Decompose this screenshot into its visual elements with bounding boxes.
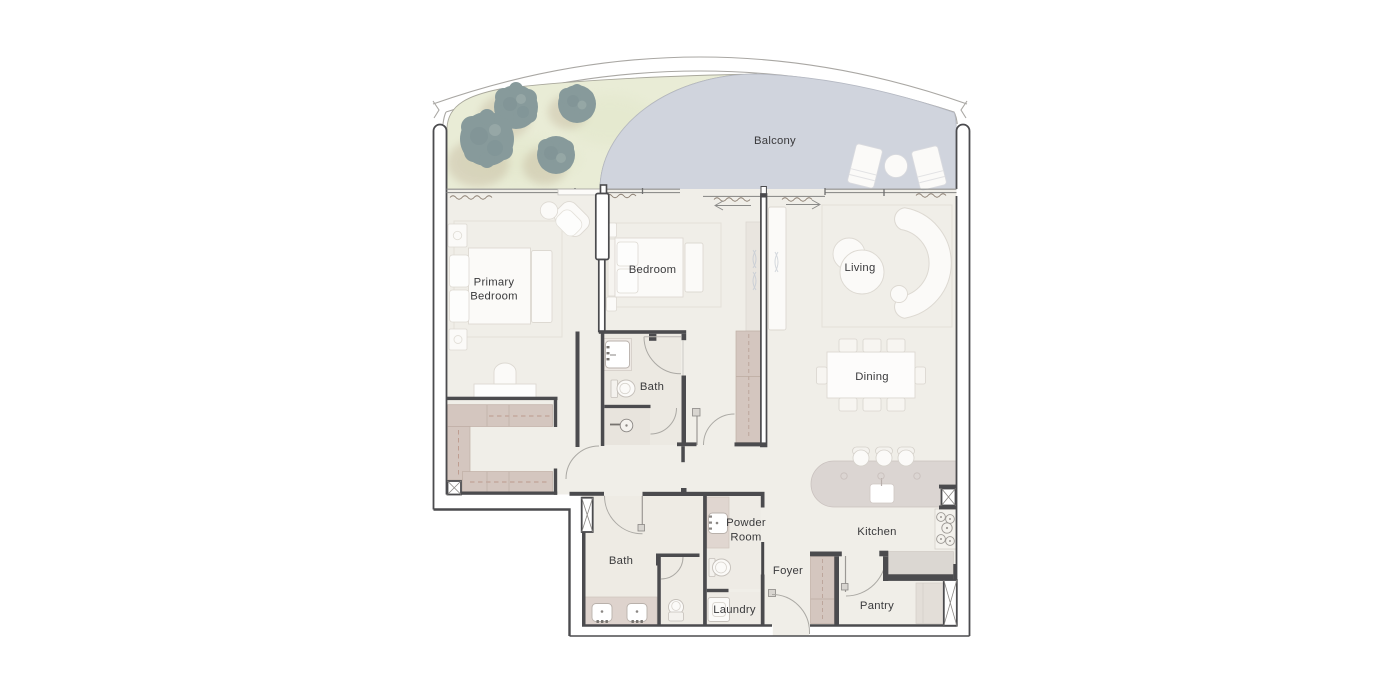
svg-text:Bedroom: Bedroom bbox=[629, 264, 677, 276]
svg-text:Laundry: Laundry bbox=[713, 604, 756, 616]
svg-text:Primary: Primary bbox=[474, 277, 515, 289]
svg-text:Bath: Bath bbox=[640, 381, 664, 393]
svg-text:Bath: Bath bbox=[609, 555, 633, 567]
svg-text:Dining: Dining bbox=[855, 371, 889, 383]
svg-text:Bedroom: Bedroom bbox=[470, 291, 518, 303]
svg-text:Room: Room bbox=[730, 532, 761, 544]
svg-text:Foyer: Foyer bbox=[773, 565, 803, 577]
svg-text:Balcony: Balcony bbox=[754, 135, 796, 147]
svg-text:Kitchen: Kitchen bbox=[857, 526, 896, 538]
svg-text:Living: Living bbox=[844, 262, 875, 274]
svg-text:Powder: Powder bbox=[726, 517, 766, 529]
svg-text:Pantry: Pantry bbox=[860, 600, 894, 612]
